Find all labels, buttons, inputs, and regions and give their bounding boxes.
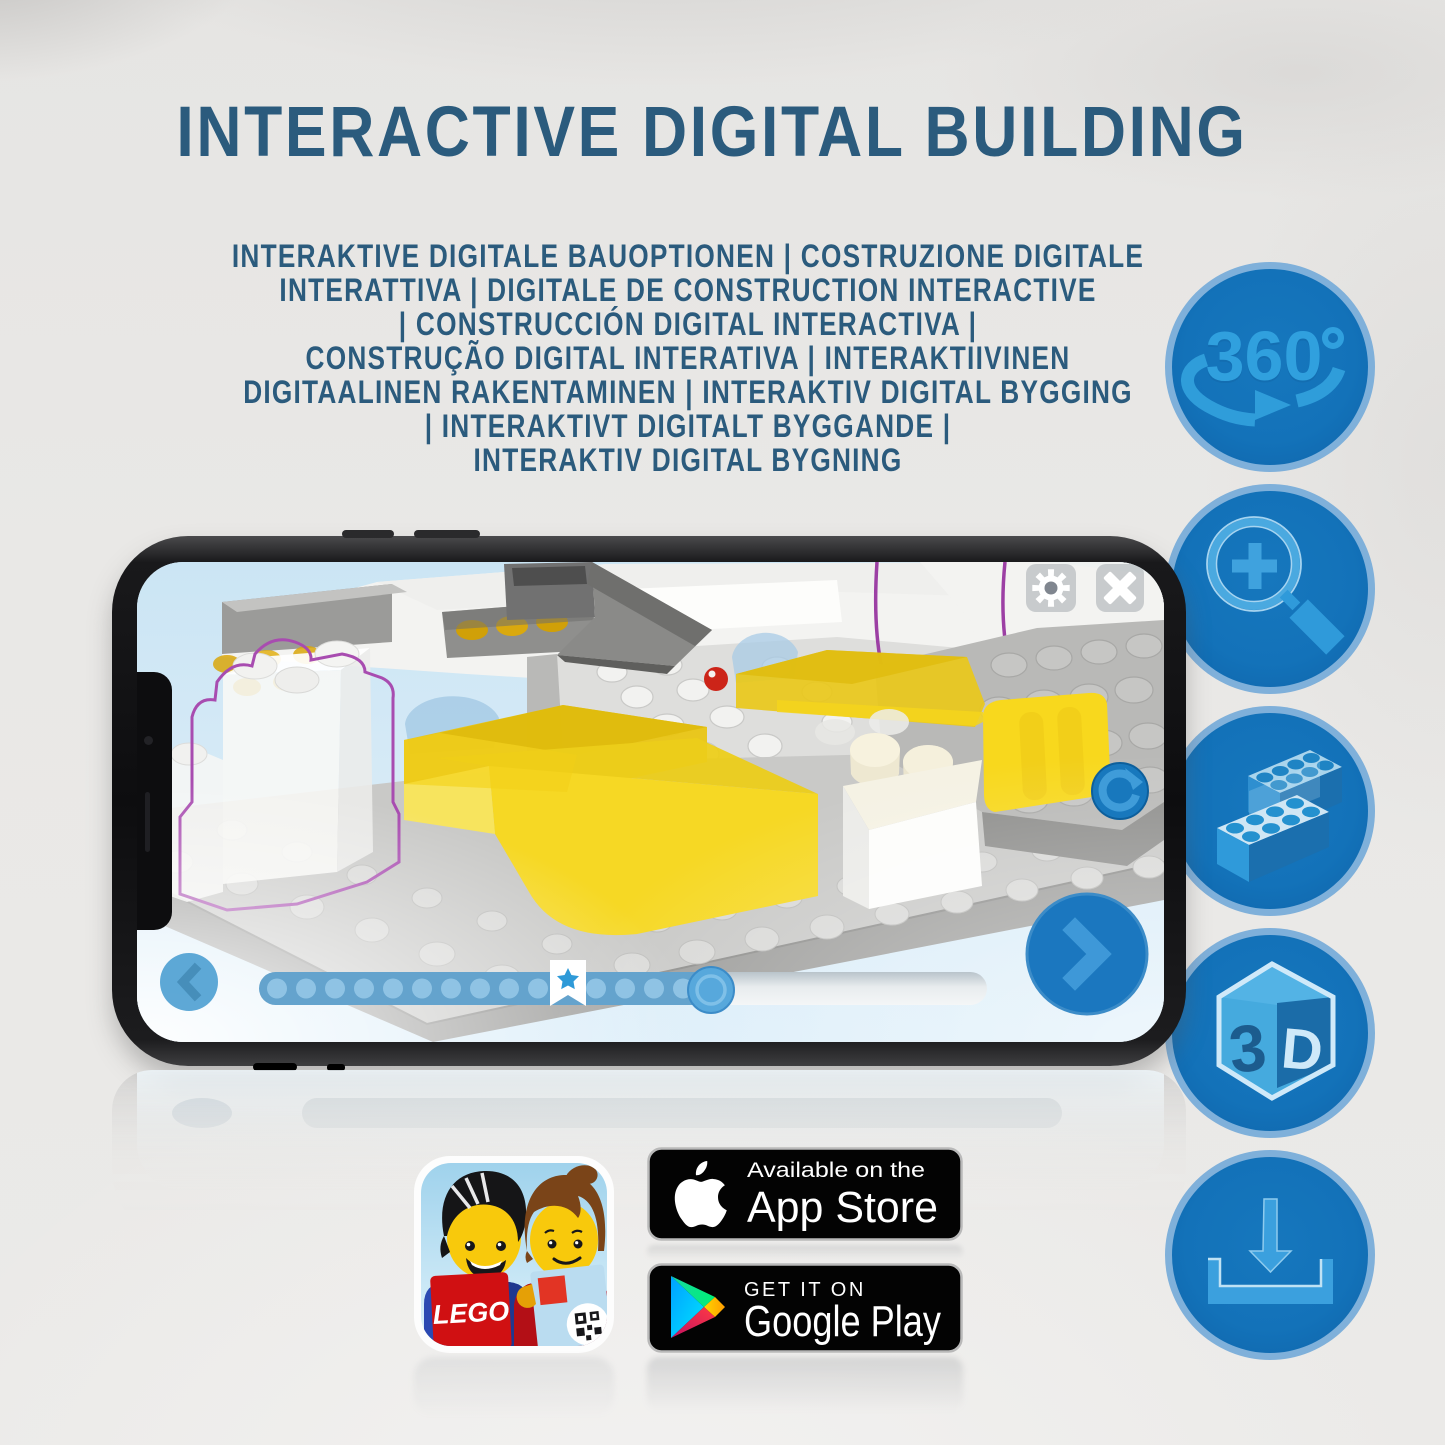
svg-text:App Store: App Store: [747, 1183, 938, 1232]
svg-text:Google Play: Google Play: [744, 1297, 941, 1346]
svg-text:3: 3: [1225, 1009, 1269, 1086]
svg-text:D: D: [1279, 1016, 1326, 1083]
svg-text:360: 360: [1206, 317, 1323, 395]
svg-text:Available on the: Available on the: [747, 1159, 925, 1182]
svg-text:LEGO: LEGO: [432, 1296, 510, 1330]
